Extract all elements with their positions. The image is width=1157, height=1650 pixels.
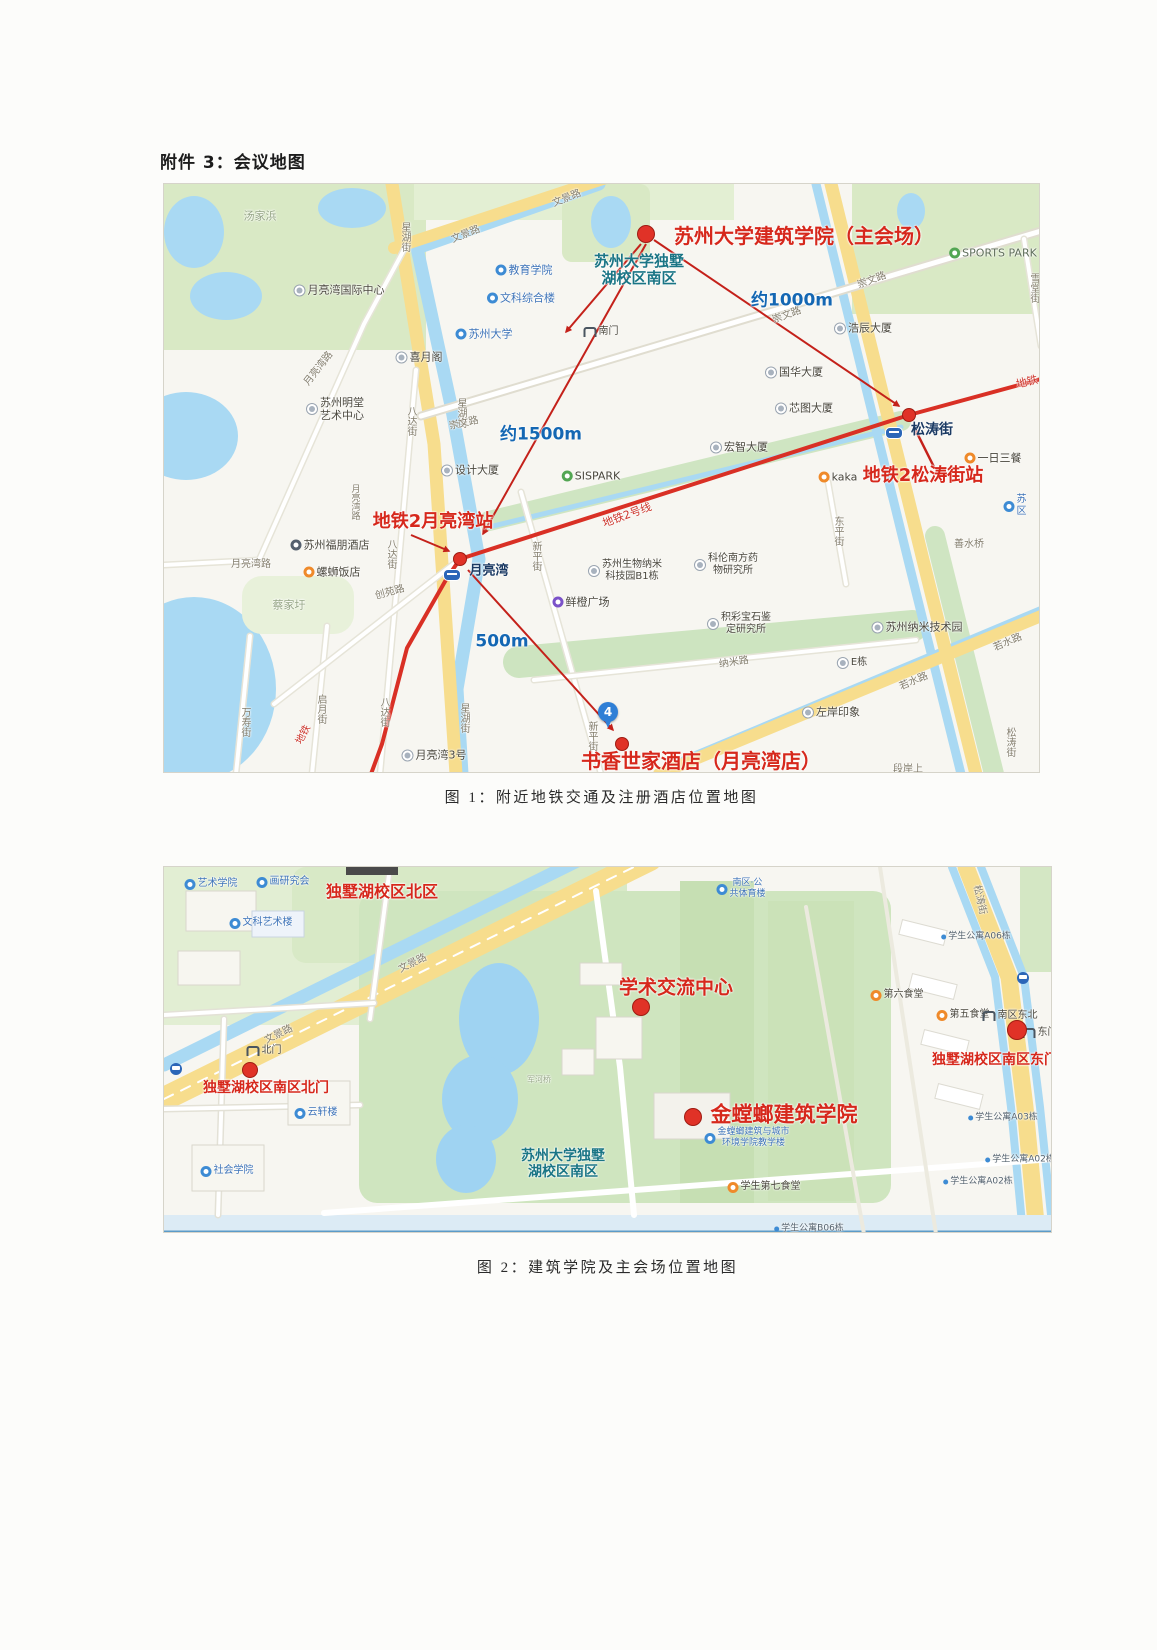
map-label: 月亮湾国际中心	[294, 284, 385, 297]
label-text: 新平街	[585, 721, 597, 751]
map-shape	[935, 1084, 983, 1110]
label-text: 喜月阁	[410, 351, 443, 364]
label-text: 书香世家酒店（月亮湾店）	[581, 750, 821, 772]
figure2-map: 独墅湖校区北区学术交流中心金螳螂建筑学院独墅湖校区南区北门独墅湖校区南区东门苏州…	[163, 866, 1052, 1233]
label-text: 独墅湖校区南区北门	[203, 1080, 329, 1096]
map-label: 云轩楼	[295, 1107, 338, 1119]
hotel-label: 书香世家酒店（月亮湾店）	[581, 750, 821, 772]
bld-icon	[707, 618, 719, 630]
dotblue-icon	[774, 1227, 779, 1232]
label-text: 艺术学院	[198, 878, 238, 890]
map-label: 段岸上	[893, 764, 923, 773]
map-label: 八达街	[377, 697, 389, 727]
label-text: 约1500m	[500, 426, 582, 445]
map-label: 学生公寓A02栋	[943, 1177, 1013, 1188]
map-label: 苏州明堂艺术中心	[306, 396, 364, 422]
label-text: 苏州大学独墅湖校区南区	[594, 253, 684, 287]
figure1-map: 4苏州大学建筑学院（主会场）地铁2月亮湾站地铁2松涛街站书香世家酒店（月亮湾店）…	[163, 183, 1040, 773]
label-text: 学生公寓B06栋	[781, 1224, 844, 1234]
map-shape	[680, 881, 754, 1203]
campus-south-label-2: 苏州大学独墅湖校区南区	[521, 1148, 605, 1180]
mall-icon	[553, 597, 564, 608]
label-text: 苏州福朋酒店	[304, 539, 370, 552]
map-label: 善水桥	[954, 539, 984, 551]
label-text: 北门	[262, 1045, 282, 1057]
map-label: 学生公寓A06栋	[941, 932, 1011, 943]
station-songtaojie: 松涛街	[911, 422, 953, 438]
label-text: 教育学院	[509, 264, 553, 277]
label-text: 八达街	[377, 697, 389, 727]
bld-icon	[306, 403, 318, 415]
label-text: 设计大厦	[455, 464, 499, 477]
map-label: 一日三餐	[965, 452, 1022, 465]
map-shape	[562, 1049, 594, 1075]
gold-mantis-school-label: 金螳螂建筑学院	[711, 1104, 858, 1127]
map-label: 八达街	[404, 406, 416, 436]
map-label: 月亮湾路	[349, 484, 360, 520]
label-text: 汤家浜	[244, 210, 277, 223]
label-text: 月亮湾	[469, 564, 508, 579]
edu-icon	[487, 293, 498, 304]
map-label: 喜月阁	[396, 351, 443, 364]
document-page: 附件 3：会议地图 4苏州大学建筑学院（主会场）地铁2月亮湾站地铁2松涛街站书香…	[0, 0, 1157, 1650]
map-label: 北门	[247, 1045, 282, 1057]
map-label: 宏智大厦	[710, 441, 768, 454]
label-text: 苏州大学独墅湖校区南区	[521, 1148, 605, 1180]
bld-icon	[837, 657, 849, 669]
bld-icon	[694, 559, 706, 571]
map-shape	[318, 188, 386, 228]
map-label: 设计大厦	[441, 464, 499, 477]
pin-tail	[604, 719, 612, 728]
label-text: 学生公寓A03栋	[975, 1113, 1038, 1124]
map2-shapes	[164, 867, 1052, 1233]
north-gate-dot	[242, 1062, 258, 1078]
yueliangwan-metro-icon	[443, 569, 461, 581]
map-shape	[436, 1125, 496, 1193]
map-shape	[190, 272, 262, 320]
label-text: 文科综合楼	[500, 292, 555, 305]
campus-north-label: 独墅湖校区北区	[326, 883, 438, 901]
label-text: 松涛街	[911, 422, 953, 438]
map-label: 启月街	[314, 694, 326, 724]
label-text: 螺蛳饭店	[317, 566, 361, 579]
map-label: 芯图大厦	[775, 402, 833, 415]
dotblue-icon	[968, 1116, 973, 1121]
dark-bar	[346, 867, 398, 875]
label-text: 万寿街	[238, 707, 250, 737]
map-label: 浩辰大厦	[834, 322, 892, 335]
label-text: 学生第七食堂	[741, 1181, 801, 1193]
distance-500m: 500m	[475, 633, 528, 652]
campus-south-label: 苏州大学独墅湖校区南区	[594, 253, 684, 287]
bld-icon	[834, 322, 846, 334]
east-gate-label: 独墅湖校区南区东门	[932, 1052, 1052, 1068]
gate-icon	[584, 327, 597, 337]
label-text: 社会学院	[214, 1165, 254, 1177]
label-text: 东平街	[831, 516, 843, 546]
label-text: 月亮湾国际中心	[308, 284, 385, 297]
dotblue-icon	[943, 1180, 948, 1185]
label-text: SPORTS PARK	[962, 247, 1037, 260]
edu-icon	[295, 1108, 306, 1119]
label-text: 学生公寓A02栋	[950, 1177, 1013, 1188]
map-label: 苏区	[1004, 494, 1027, 518]
station-yueliangwan-annotation: 地铁2月亮湾站	[373, 512, 494, 532]
map-label: 文科艺术楼	[230, 917, 293, 929]
food-icon	[304, 567, 315, 578]
label-text: E栋	[851, 657, 867, 669]
map-label: 社会学院	[201, 1165, 254, 1177]
map-label: 学生第七食堂	[728, 1181, 801, 1193]
label-text: 浩辰大厦	[848, 322, 892, 335]
map-label: 万寿街	[238, 707, 250, 737]
bus-stop-icon-west	[170, 1063, 182, 1075]
edu-icon	[496, 265, 507, 276]
map-shape	[580, 963, 622, 985]
label-text: 一日三餐	[978, 452, 1022, 465]
label-text: 新平街	[529, 541, 541, 571]
label-text: 学生公寓A02栋	[992, 1155, 1052, 1166]
label-text: kaka	[832, 471, 858, 484]
label-text: 鲜橙广场	[566, 596, 610, 609]
label-text: 东门	[1038, 1027, 1053, 1039]
songtaojie-station-dot	[902, 408, 916, 422]
map-label: 积彩宝石鉴定研究所	[707, 612, 771, 636]
label-text: 星湖街	[398, 222, 410, 252]
label-text: 段岸上	[893, 764, 923, 773]
label-text: 国华大厦	[779, 366, 823, 379]
map-label: 苏州纳米技术园	[872, 621, 963, 634]
map-label: 学生公寓A03栋	[968, 1113, 1038, 1124]
map-label: 学生公寓B06栋	[774, 1224, 844, 1234]
bld-icon	[775, 402, 787, 414]
map-label: 月亮湾3号	[402, 749, 467, 762]
hotel-icon	[291, 540, 302, 551]
map-label: 南区东北	[983, 1010, 1038, 1022]
label-text: 雪堂街	[1027, 273, 1039, 303]
food-icon	[937, 1010, 948, 1021]
map-label: 八达街	[384, 539, 396, 569]
label-text: 芯图大厦	[789, 402, 833, 415]
label-text: 金螳螂建筑与城市环境学院教学楼	[717, 1127, 789, 1149]
label-text: 学生公寓A06栋	[948, 932, 1011, 943]
map-shape	[591, 196, 631, 248]
label-text: 苏州纳米技术园	[886, 621, 963, 634]
hotel-pin-4: 4	[598, 702, 618, 722]
map-label: SPORTS PARK	[949, 247, 1037, 260]
map-label: 教育学院	[496, 264, 553, 277]
label-text: 月亮湾路	[231, 559, 271, 571]
label-text: 八达街	[404, 406, 416, 436]
page-title: 附件 3：会议地图	[160, 148, 306, 173]
edu-icon	[456, 329, 467, 340]
map-label: 苏州生物纳米科技园B1栋	[588, 559, 662, 583]
label-text: 地铁2月亮湾站	[373, 512, 494, 532]
map-shape	[164, 196, 224, 268]
dotblue-icon	[985, 1158, 990, 1163]
label-text: 云轩楼	[308, 1107, 338, 1119]
map-label: 国华大厦	[765, 366, 823, 379]
bld-icon	[294, 284, 306, 296]
food-icon	[819, 472, 830, 483]
station-yueliangwan: 月亮湾	[469, 564, 508, 579]
bld-icon	[765, 366, 777, 378]
map-shape	[1020, 867, 1052, 972]
map-label: 汤家浜	[244, 210, 277, 223]
map-label: 雪堂街	[1027, 273, 1039, 303]
edu-icon	[201, 1166, 212, 1177]
map-label: 星湖街	[398, 222, 410, 252]
map-label: 苏州福朋酒店	[291, 539, 370, 552]
academic-center-label: 学术交流中心	[619, 978, 733, 999]
edu-icon	[230, 918, 241, 929]
map-label: 艺术学院	[185, 878, 238, 890]
distance-1500m: 约1500m	[500, 426, 582, 445]
label-text: 月亮湾路	[349, 484, 360, 520]
map-label: 文科综合楼	[487, 292, 555, 305]
label-text: 八达街	[384, 539, 396, 569]
edu-icon	[1004, 501, 1015, 512]
east-gate-dot	[1007, 1020, 1027, 1040]
bld-icon	[402, 749, 414, 761]
map-label: 金螳螂建筑与城市环境学院教学楼	[704, 1127, 789, 1149]
label-text: SISPARK	[575, 470, 621, 483]
bus-stop-icon-east	[1017, 972, 1029, 984]
label-text: 南门	[599, 326, 619, 338]
label-text: 宏智大厦	[724, 441, 768, 454]
map-label: 左岸印象	[802, 706, 860, 719]
dotblue-icon	[941, 935, 946, 940]
yueliangwan-station-dot	[453, 552, 467, 566]
bld-icon	[710, 441, 722, 453]
label-text: 独墅湖校区南区东门	[932, 1052, 1052, 1068]
map-shape	[178, 951, 240, 985]
label-text: 苏州生物纳米科技园B1栋	[602, 559, 662, 583]
map-shape	[596, 1017, 642, 1059]
map-label: 南区·公共体育楼	[716, 878, 765, 900]
hotel-dot	[615, 737, 629, 751]
label-text: 学术交流中心	[619, 978, 733, 999]
map-label: 新平街	[585, 721, 597, 751]
label-text: 月亮湾3号	[416, 749, 467, 762]
map-label: kaka	[819, 471, 858, 484]
map-label: 苏州大学	[456, 328, 513, 341]
label-text: 科伦南方药物研究所	[708, 553, 758, 577]
label-text: 500m	[475, 633, 528, 652]
bld-icon	[441, 464, 453, 476]
label-text: 画研究会	[270, 876, 310, 888]
figure2-caption: 图 2：建筑学院及主会场位置地图	[163, 1256, 1052, 1277]
edu-icon	[257, 877, 268, 888]
map-label: E栋	[837, 657, 867, 669]
map-shape	[164, 1215, 1052, 1233]
bld-icon	[588, 565, 600, 577]
label-text: 积彩宝石鉴定研究所	[721, 612, 771, 636]
label-text: 蔡家圩	[273, 599, 306, 612]
gate-icon	[983, 1011, 996, 1021]
map-label: SISPARK	[562, 470, 621, 483]
food-icon	[965, 453, 976, 464]
academic-center-dot	[632, 998, 650, 1016]
venue-label: 苏州大学建筑学院（主会场）	[674, 225, 934, 247]
label-text: 星湖街	[457, 703, 469, 733]
map-label: 军河桥	[527, 1075, 551, 1085]
edu-icon	[716, 884, 727, 895]
label-text: 文科艺术楼	[243, 917, 293, 929]
label-text: 独墅湖校区北区	[326, 883, 438, 901]
map-label: 螺蛳饭店	[304, 566, 361, 579]
edu-icon	[704, 1133, 715, 1144]
map-label: 东平街	[831, 516, 843, 546]
bld-icon	[396, 351, 408, 363]
songtaojie-metro-icon	[885, 427, 903, 439]
map-label: 科伦南方药物研究所	[694, 553, 758, 577]
map-label: 新平街	[529, 541, 541, 571]
map-label: 南门	[584, 326, 619, 338]
label-text: 金螳螂建筑学院	[711, 1104, 858, 1127]
map-label: 画研究会	[257, 876, 310, 888]
map-shape	[421, 231, 1040, 416]
map-label: 第六食堂	[871, 989, 924, 1001]
map-label: 学生公寓A02栋	[985, 1155, 1052, 1166]
label-text: 苏州明堂艺术中心	[320, 396, 364, 422]
label-text: 南区·公共体育楼	[729, 878, 765, 900]
north-gate-label: 独墅湖校区南区北门	[203, 1080, 329, 1096]
map-shape	[899, 920, 947, 946]
figure1-caption: 图 1：附近地铁交通及注册酒店位置地图	[163, 786, 1040, 807]
map-label: 松涛街	[1003, 727, 1015, 757]
label-text: 左岸印象	[816, 706, 860, 719]
label-text: 善水桥	[954, 539, 984, 551]
map-label: 鲜橙广场	[553, 596, 610, 609]
label-text: 苏州大学建筑学院（主会场）	[674, 225, 934, 247]
label-text: 第六食堂	[884, 989, 924, 1001]
label-text: 地铁2松涛街站	[863, 466, 984, 486]
gate-icon	[247, 1046, 260, 1056]
label-text: 苏州大学	[469, 328, 513, 341]
station-songtaojie-annotation: 地铁2松涛街站	[863, 466, 984, 486]
label-text: 松涛街	[1003, 727, 1015, 757]
label-text: 军河桥	[527, 1075, 551, 1085]
park-icon	[949, 248, 960, 259]
edu-icon	[185, 879, 196, 890]
map-label: 月亮湾路	[231, 559, 271, 571]
bld-icon	[802, 706, 814, 718]
map-shape	[164, 392, 238, 480]
venue-dot	[637, 225, 655, 243]
label-text: 苏区	[1017, 494, 1027, 518]
bld-icon	[872, 621, 884, 633]
map-label: 星湖街	[457, 703, 469, 733]
park-icon	[562, 471, 573, 482]
food-icon	[728, 1182, 739, 1193]
label-text: 启月街	[314, 694, 326, 724]
food-icon	[871, 990, 882, 1001]
map-label: 蔡家圩	[273, 599, 306, 612]
gold-mantis-dot	[684, 1108, 702, 1126]
